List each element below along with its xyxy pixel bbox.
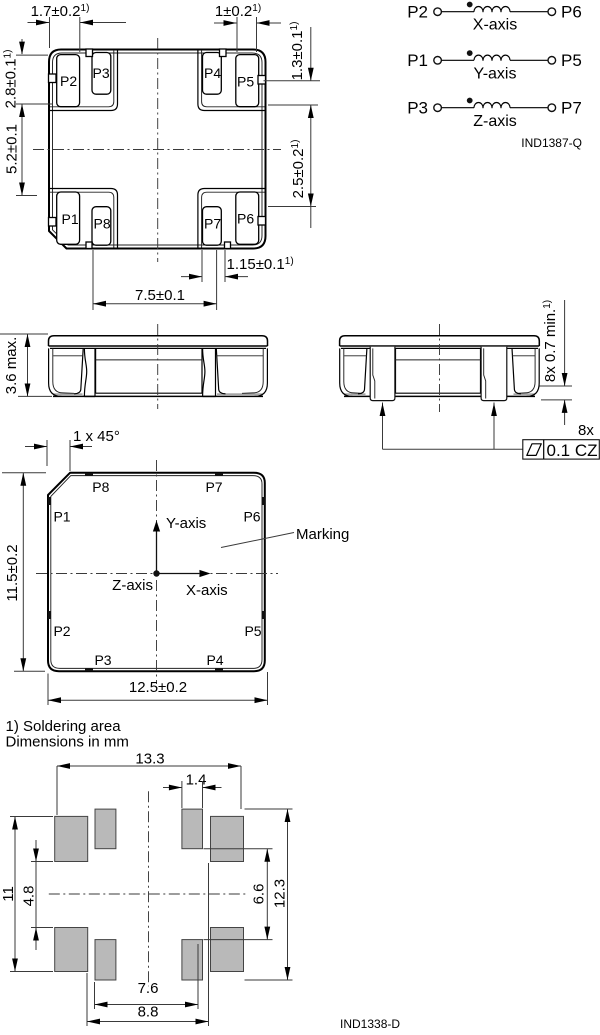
svg-text:Y-axis: Y-axis	[166, 515, 206, 532]
svg-text:P7: P7	[205, 479, 222, 495]
svg-text:1.4: 1.4	[186, 772, 207, 789]
svg-text:IND1338-D: IND1338-D	[340, 1017, 400, 1031]
svg-text:P1: P1	[53, 509, 70, 525]
svg-text:0.1 CZ: 0.1 CZ	[547, 441, 598, 460]
svg-text:Marking: Marking	[296, 526, 349, 543]
svg-text:P6: P6	[237, 211, 254, 227]
svg-text:8.8: 8.8	[138, 1004, 159, 1021]
svg-text:P5: P5	[561, 51, 582, 70]
svg-text:3.6 max.: 3.6 max.	[3, 337, 20, 395]
svg-text:P7: P7	[561, 99, 582, 118]
svg-text:P6: P6	[561, 3, 582, 22]
svg-text:P3: P3	[407, 99, 428, 118]
svg-text:P2: P2	[60, 73, 77, 89]
svg-text:11.5±0.2: 11.5±0.2	[4, 544, 21, 601]
svg-text:P2: P2	[53, 623, 70, 639]
svg-text:X-axis: X-axis	[473, 17, 517, 34]
svg-text:1.15±0.11): 1.15±0.11)	[227, 256, 294, 273]
svg-text:13.3: 13.3	[135, 751, 164, 768]
svg-text:5.2±0.1: 5.2±0.1	[4, 124, 21, 174]
svg-text:P5: P5	[244, 623, 261, 639]
svg-text:P4: P4	[204, 65, 221, 81]
svg-text:P4: P4	[206, 652, 223, 668]
svg-text:1) Soldering area: 1) Soldering area	[6, 718, 122, 735]
svg-text:P6: P6	[243, 509, 260, 525]
svg-text:11: 11	[0, 886, 17, 902]
svg-text:P2: P2	[407, 3, 428, 22]
svg-text:P5: P5	[237, 74, 254, 90]
svg-text:Z-axis: Z-axis	[473, 113, 517, 130]
svg-text:P8: P8	[94, 216, 111, 232]
svg-text:6.6: 6.6	[251, 884, 268, 905]
svg-text:Dimensions in mm: Dimensions in mm	[6, 734, 129, 751]
svg-text:8x: 8x	[578, 422, 594, 439]
svg-text:P7: P7	[204, 216, 221, 232]
svg-text:P1: P1	[407, 51, 428, 70]
svg-text:P8: P8	[92, 479, 109, 495]
svg-text:4.8: 4.8	[21, 886, 38, 907]
svg-text:IND1387-Q: IND1387-Q	[521, 136, 582, 150]
svg-text:P3: P3	[94, 652, 111, 668]
svg-text:12.3: 12.3	[272, 879, 289, 908]
svg-text:7.5±0.1: 7.5±0.1	[135, 287, 185, 304]
svg-text:12.5±0.2: 12.5±0.2	[129, 679, 187, 696]
svg-text:8x 0.7 min.1): 8x 0.7 min.1)	[542, 300, 559, 382]
svg-text:7.6: 7.6	[138, 980, 159, 997]
svg-text:Z-axis: Z-axis	[112, 577, 153, 594]
svg-text:Y-axis: Y-axis	[474, 66, 517, 83]
svg-text:1 x 45°: 1 x 45°	[73, 428, 120, 445]
svg-text:P1: P1	[62, 211, 79, 227]
svg-text:P3: P3	[93, 65, 110, 81]
svg-text:X-axis: X-axis	[186, 582, 228, 599]
